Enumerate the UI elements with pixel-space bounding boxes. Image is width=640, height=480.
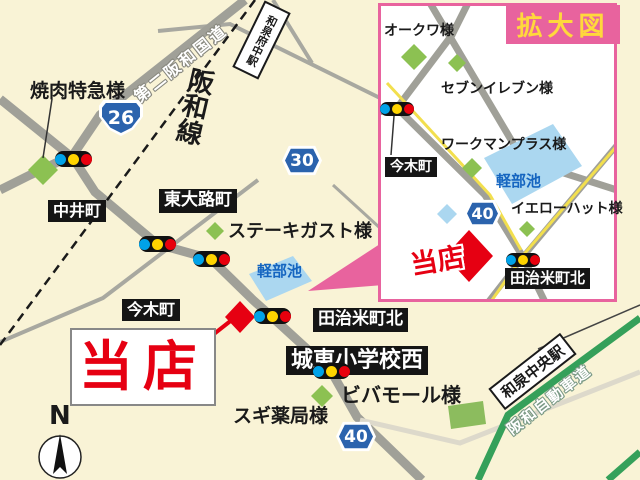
route-26-number: 26 bbox=[102, 103, 140, 133]
yakiniku-tokkyu-label: 焼肉特急様 bbox=[30, 76, 125, 103]
joto-elementary-west-label: 城東小学校西 bbox=[286, 346, 428, 375]
signal-red-lamp bbox=[530, 255, 540, 265]
signal-red-lamp bbox=[339, 366, 350, 377]
store-label: 当店 bbox=[79, 340, 207, 394]
store-marker bbox=[225, 301, 255, 333]
signal-red-lamp bbox=[404, 104, 414, 114]
inset-tajimecho-kita-label: 田治米町北 bbox=[505, 268, 590, 289]
route-40-number: 40 bbox=[339, 424, 373, 449]
signal-red-lamp bbox=[81, 154, 92, 165]
landmark-marker bbox=[206, 222, 224, 240]
signal-blue-lamp bbox=[193, 254, 204, 265]
signal-yellow-lamp bbox=[518, 255, 528, 265]
signal-blue-lamp bbox=[380, 104, 390, 114]
signal-blue-lamp bbox=[506, 255, 516, 265]
yellow-hat-label: イエローハット様 bbox=[511, 198, 623, 218]
traffic-light bbox=[313, 363, 350, 379]
signal-yellow-lamp bbox=[68, 154, 79, 165]
viva-mall-label: ビバモール様 bbox=[341, 379, 461, 408]
signal-red-lamp bbox=[219, 254, 230, 265]
traffic-light bbox=[254, 308, 291, 324]
route-30-shield: 30 bbox=[282, 145, 322, 176]
signal-yellow-lamp bbox=[392, 104, 402, 114]
route-26-shield: 26 bbox=[99, 100, 143, 136]
signal-yellow-lamp bbox=[326, 366, 337, 377]
traffic-light bbox=[380, 102, 414, 116]
traffic-light bbox=[506, 253, 540, 267]
okuwa-label: オークワ様 bbox=[384, 20, 454, 40]
signal-yellow-lamp bbox=[267, 311, 278, 322]
signal-blue-lamp bbox=[139, 239, 150, 250]
signal-yellow-lamp bbox=[206, 254, 217, 265]
karubeike-pond-label: 軽部池 bbox=[257, 260, 302, 281]
compass-north-label: N bbox=[49, 401, 71, 431]
traffic-light bbox=[193, 251, 230, 267]
sugi-pharmacy-label: スギ薬局様 bbox=[233, 401, 328, 428]
traffic-light bbox=[139, 236, 176, 252]
inset-pointer-wedge bbox=[308, 242, 383, 291]
signal-yellow-lamp bbox=[152, 239, 163, 250]
nakaicho-intersection-label: 中井町 bbox=[48, 200, 106, 222]
tajimecho-kita-intersection-label: 田治米町北 bbox=[313, 308, 408, 332]
signal-blue-lamp bbox=[55, 154, 66, 165]
inset-route-40-shield: 40 bbox=[464, 199, 501, 228]
inset-imakicho-label: 今木町 bbox=[385, 157, 437, 177]
store-access-map: 焼肉特急様 第二阪和国道 阪和線 和泉府中駅 26 中井町 東大路町 30 ステ… bbox=[0, 0, 640, 480]
traffic-light bbox=[55, 151, 92, 167]
steak-gusto-label: ステーキガスト様 bbox=[228, 217, 372, 243]
route-40-shield: 40 bbox=[336, 421, 376, 452]
inset-karubeike-pond-label: 軽部池 bbox=[496, 170, 541, 191]
signal-red-lamp bbox=[280, 311, 291, 322]
expressway-road bbox=[608, 452, 640, 480]
signal-blue-lamp bbox=[313, 366, 324, 377]
store-callout-box: 当店 bbox=[70, 328, 216, 406]
seven-eleven-label: セブンイレブン様 bbox=[441, 78, 553, 98]
inset-route-40-number: 40 bbox=[467, 202, 498, 225]
route-30-number: 30 bbox=[285, 148, 319, 173]
leader-line bbox=[43, 99, 52, 158]
signal-red-lamp bbox=[165, 239, 176, 250]
inset-title-badge: 拡大図 bbox=[506, 5, 620, 44]
imakicho-intersection-label: 今木町 bbox=[122, 299, 180, 321]
workman-plus-label: ワークマンプラス様 bbox=[441, 134, 566, 154]
higashiojicho-intersection-label: 東大路町 bbox=[159, 189, 237, 213]
signal-blue-lamp bbox=[254, 311, 265, 322]
